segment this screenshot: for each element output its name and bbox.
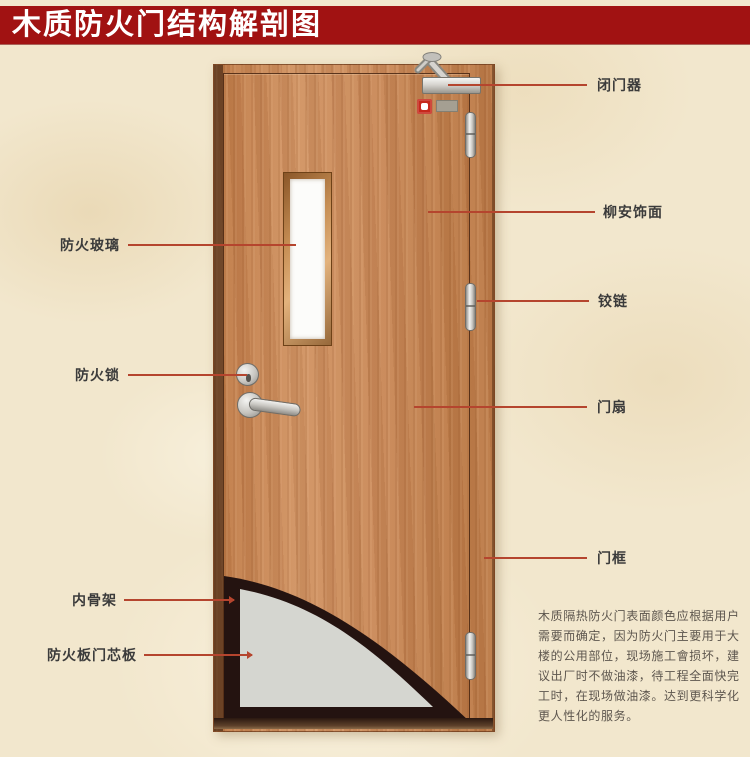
label-door-frame: 门框	[597, 551, 627, 566]
label-veneer: 柳安饰面	[603, 205, 663, 220]
leader-line-door-frame	[484, 557, 587, 559]
page-title: 木质防火门结构解剖图	[0, 11, 322, 40]
label-hinge: 铰链	[598, 294, 628, 309]
description-line: 楼的公用部位，现场施工會损坏，建	[538, 646, 728, 666]
label-fire-lock: 防火锁	[20, 368, 120, 383]
description-line: 更人性化的服务。	[538, 706, 728, 726]
fire-glass-window	[283, 172, 332, 346]
closer-gray-plate	[436, 100, 458, 112]
door-bottom-edge	[214, 718, 493, 729]
leader-line-door-leaf	[414, 406, 587, 408]
hinge-bottom	[465, 632, 476, 680]
hinge-top	[465, 112, 476, 158]
description-paragraph: 木质隔热防火门表面颜色应根据用户 需要而确定，因为防火门主要用于大 楼的公用部位…	[538, 606, 728, 726]
label-core-panel: 防火板门芯板	[27, 648, 137, 663]
leader-line-fire-glass	[128, 244, 296, 246]
description-line: 需要而确定，因为防火门主要用于大	[538, 626, 728, 646]
label-door-closer: 闭门器	[597, 78, 642, 93]
description-line: 木质隔热防火门表面颜色应根据用户	[538, 606, 728, 626]
closer-red-indicator	[417, 99, 432, 114]
leader-line-fire-lock	[128, 374, 247, 376]
label-door-leaf: 门扇	[597, 400, 627, 415]
label-inner-skeleton: 内骨架	[17, 593, 117, 608]
label-fire-glass: 防火玻璃	[20, 238, 120, 253]
description-line: 工时，在现场做油漆。达到更科学化	[538, 686, 728, 706]
leader-line-hinge	[477, 300, 589, 302]
leader-line-veneer	[428, 211, 595, 213]
diagram-canvas: 木质防火门结构解剖图	[0, 0, 750, 757]
leader-line-core-panel	[144, 654, 252, 656]
leader-line-door-closer	[448, 84, 587, 86]
leader-line-inner-skeleton	[124, 599, 234, 601]
glass-pane	[290, 179, 325, 339]
hinge-middle	[465, 283, 476, 331]
title-banner: 木质防火门结构解剖图	[0, 6, 750, 44]
description-line: 议出厂时不做油漆，待工程全面快完	[538, 666, 728, 686]
